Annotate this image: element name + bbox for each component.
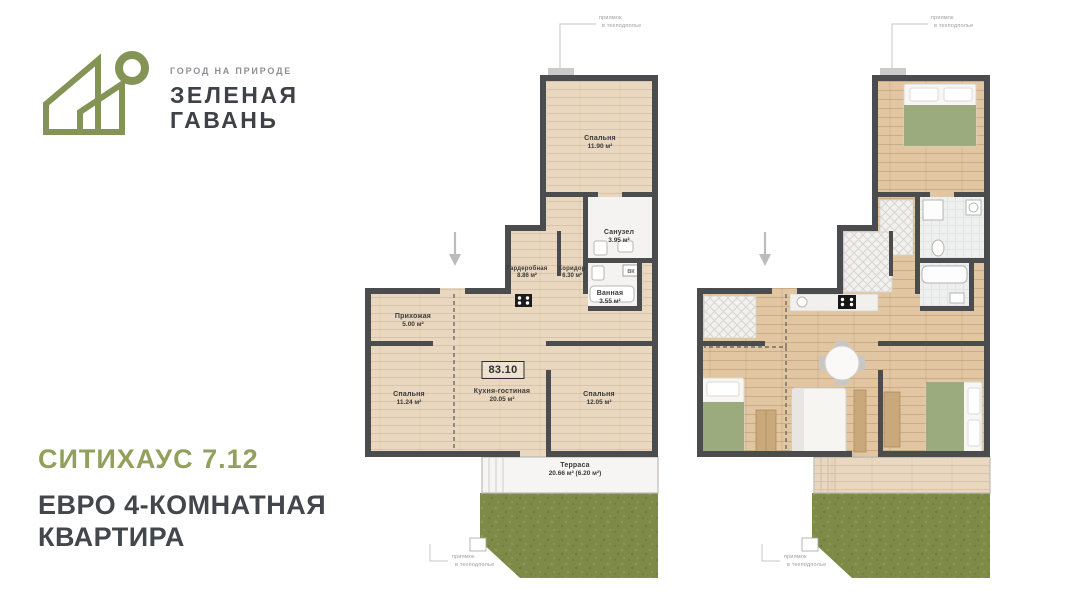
room-label-terrace: Терраса 20.66 м² (6.20 м²) [549, 462, 602, 477]
apartment-title-line1: ЕВРО 4-КОМНАТНАЯ [38, 489, 326, 521]
pit-marker-top [880, 68, 906, 75]
grass-lawn [812, 493, 990, 578]
pit-marker-bottom [470, 538, 486, 551]
entrance-arrow-icon [449, 232, 461, 266]
pit-leader-top [560, 24, 596, 68]
brand-text: ГОРОД НА ПРИРОДЕ ЗЕЛЕНАЯ ГАВАНЬ [170, 66, 298, 134]
room-label-bathroom: Ванная 3.55 м² [597, 290, 624, 305]
marketing-sheet: ГОРОД НА ПРИРОДЕ ЗЕЛЕНАЯ ГАВАНЬ СИТИХАУС… [0, 0, 1080, 607]
listing-titles: СИТИХАУС 7.12 ЕВРО 4-КОМНАТНАЯ КВАРТИРА [38, 444, 326, 554]
pit-marker-top [548, 68, 574, 75]
room-label-bedroom-top: Спальня 11.90 м² [584, 135, 616, 150]
total-area-badge: 83.10 [481, 361, 524, 379]
brand-name-line1: ЗЕЛЕНАЯ [170, 83, 298, 108]
room-label-kitchen-living: Кухня-гостиная 20.05 м² [474, 388, 530, 403]
wardrobe-right [884, 392, 900, 447]
pit-leader-top [892, 24, 928, 68]
pit-note-top: приямок в техподполье [599, 14, 641, 31]
brand-name: ЗЕЛЕНАЯ ГАВАНЬ [170, 83, 298, 134]
pit-leader-bottom [762, 544, 780, 561]
room-label-corridor: Коридор 6.30 м² [558, 266, 585, 279]
room-label-wc: Санузел 3.95 м² [604, 229, 634, 244]
bed-left [702, 378, 744, 453]
sofa [792, 388, 846, 454]
brand-name-line2: ГАВАНЬ [170, 108, 298, 133]
terrace-structure [814, 457, 990, 493]
apartment-title-line2: КВАРТИРА [38, 521, 326, 553]
entrance-arrow-icon [759, 232, 771, 266]
wardrobe-hatch-dressing [844, 232, 892, 292]
pit-note-bottom: приямок в техподполье [452, 553, 494, 570]
pit-leader-bottom [430, 544, 448, 561]
kitchen-counter [790, 294, 878, 311]
apartment-title: ЕВРО 4-КОМНАТНАЯ КВАРТИРА [38, 489, 326, 554]
hall-closet-hatch [704, 296, 756, 338]
pit-note-bottom: приямок в техподполье [784, 553, 826, 570]
bed-top [904, 84, 976, 146]
pit-marker-bottom [802, 538, 818, 551]
pit-note-top: приямок в техподполье [931, 14, 973, 31]
room-label-bedroom-left: Спальня 11.24 м² [393, 391, 425, 406]
brand-tagline: ГОРОД НА ПРИРОДЕ [170, 66, 298, 76]
schematic-floorplan: ВК [360, 10, 665, 585]
vent-shaft: ВК [623, 265, 639, 276]
grass-lawn [480, 493, 658, 578]
stove-icon [515, 294, 532, 307]
furnished-floorplan: приямок в техподполье приямок в техподпо… [692, 10, 997, 585]
room-label-hall: Прихожая 5.00 м² [395, 313, 431, 328]
brand-header: ГОРОД НА ПРИРОДЕ ЗЕЛЕНАЯ ГАВАНЬ [40, 42, 298, 138]
room-label-bedroom-right: Спальня 12.05 м² [583, 391, 615, 406]
plan-code: СИТИХАУС 7.12 [38, 444, 326, 475]
svg-text:ВК: ВК [627, 269, 635, 275]
brand-logo-icon [40, 42, 158, 138]
tv-stand [854, 390, 866, 452]
room-label-wardrobe: Гардеробная 8.86 м² [506, 266, 547, 279]
bed-right [926, 382, 982, 454]
